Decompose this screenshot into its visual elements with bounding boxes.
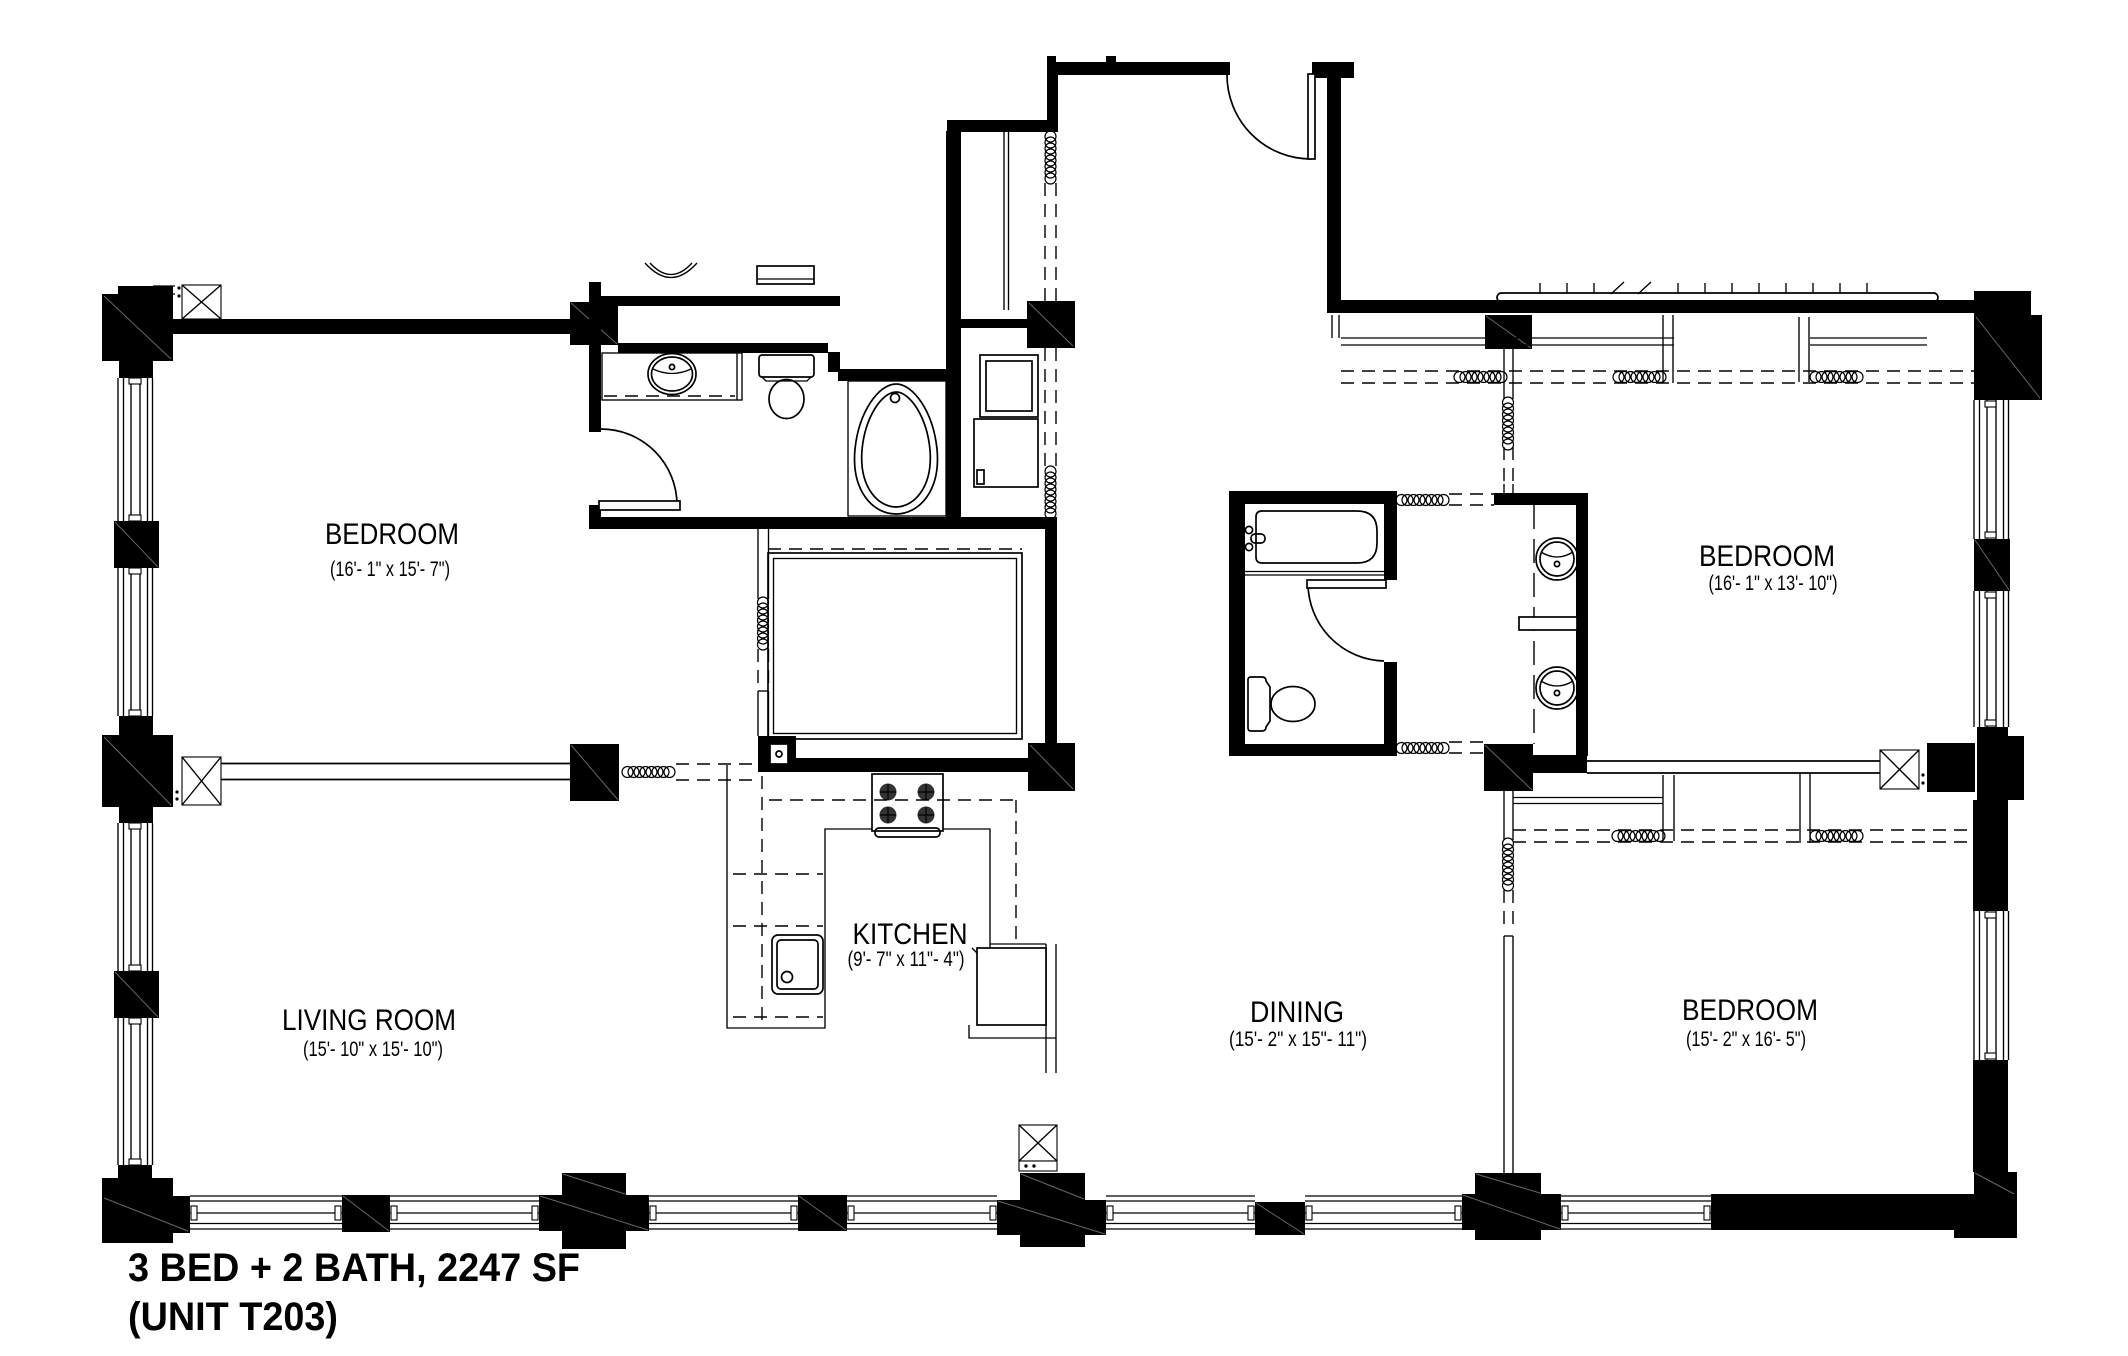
svg-text:BEDROOM: BEDROOM bbox=[325, 518, 459, 551]
svg-text:(16'- 1" x 15'- 7"): (16'- 1" x 15'- 7") bbox=[330, 558, 450, 581]
svg-text:(15'- 2" x 15"- 11"): (15'- 2" x 15"- 11") bbox=[1229, 1028, 1367, 1051]
svg-text:BEDROOM: BEDROOM bbox=[1699, 540, 1835, 573]
svg-text:KITCHEN: KITCHEN bbox=[853, 918, 968, 951]
svg-text:LIVING ROOM: LIVING ROOM bbox=[282, 1004, 456, 1037]
svg-text:(UNIT T203): (UNIT T203) bbox=[128, 1295, 338, 1339]
svg-text:(9'- 7" x 11"- 4"): (9'- 7" x 11"- 4") bbox=[848, 948, 965, 971]
svg-text:BEDROOM: BEDROOM bbox=[1682, 994, 1818, 1027]
svg-text:(15'- 2" x 16'- 5"): (15'- 2" x 16'- 5") bbox=[1686, 1028, 1806, 1051]
svg-text:DINING: DINING bbox=[1250, 996, 1344, 1029]
svg-text:(15'- 10" x 15'- 10"): (15'- 10" x 15'- 10") bbox=[303, 1038, 443, 1061]
svg-text:(16'- 1" x 13'- 10"): (16'- 1" x 13'- 10") bbox=[1709, 572, 1838, 595]
svg-text:3 BED + 2 BATH, 2247 SF: 3 BED + 2 BATH, 2247 SF bbox=[128, 1246, 580, 1290]
